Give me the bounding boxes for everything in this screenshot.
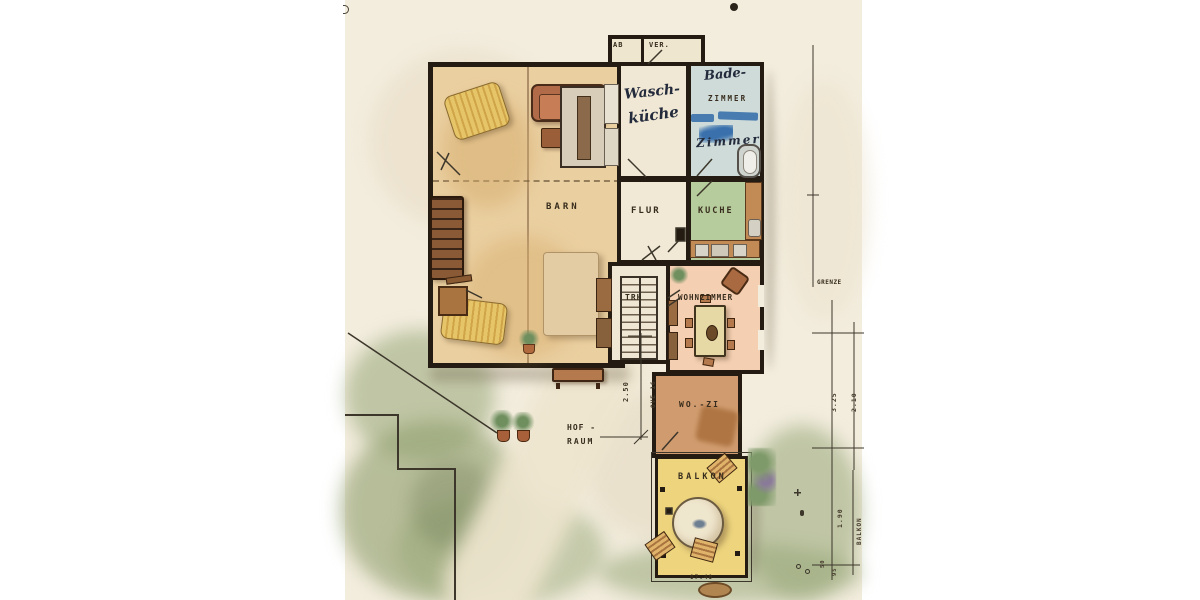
bench-leg: [596, 383, 600, 389]
kitchen-counter: [690, 240, 760, 258]
railing-post: [660, 487, 665, 492]
shrub-cluster: [748, 448, 776, 506]
shelf-contents: [577, 96, 591, 160]
dining-table: [694, 305, 726, 357]
window-opening: [758, 330, 764, 350]
ink-speck: [794, 489, 801, 496]
chair: [685, 338, 693, 348]
sideboard: [668, 300, 678, 326]
sink: [748, 219, 761, 237]
room-label-ver: VER.: [649, 41, 670, 49]
ink-speck: [796, 564, 801, 569]
floor-plan-scene: AB VER. Wasch- küche Bade- ZIMMER Zimmer…: [0, 0, 1200, 600]
staircase: [620, 276, 658, 360]
chair: [702, 357, 714, 367]
chair: [727, 318, 735, 328]
bathtub: [737, 144, 761, 178]
small-cabinet: [596, 278, 612, 312]
flower-pot: [517, 430, 530, 442]
blue-paint-stroke: [718, 111, 758, 120]
long-table-rug: [543, 252, 599, 336]
room-label-trh: TRH: [625, 293, 642, 302]
window-opening: [758, 285, 764, 307]
table-centerpiece: [706, 325, 718, 341]
room-label-bade-print: ZIMMER: [708, 94, 747, 103]
dimension-left-a: 2.50: [622, 381, 630, 402]
bench: [552, 368, 604, 382]
flower-pot: [497, 430, 510, 442]
dimension-left-b: OVE 16: [650, 380, 657, 408]
plant-pot: [523, 344, 535, 354]
dimension-right-b: 2.10: [850, 392, 858, 412]
counter-appliance: [733, 244, 747, 257]
railing-post: [737, 486, 742, 491]
dimension-bottom: 07.40: [690, 574, 713, 581]
dimension-right-d: BALKON: [856, 517, 863, 545]
laundry-appliance: [604, 128, 619, 166]
room-wozi: [652, 372, 742, 458]
stepping-stone: [698, 582, 732, 598]
room-label-flur: FLUR: [631, 206, 661, 216]
area-label-hof-line1: HOF -: [567, 423, 596, 432]
dimension-right-c: 1.90: [836, 508, 844, 528]
room-label-wozi: WO.-ZI: [679, 400, 720, 409]
room-label-kueche: KUCHE: [698, 206, 734, 216]
plant-foliage: [510, 412, 536, 432]
boundary-label-grenze: GRENZE: [817, 279, 842, 286]
ink-speck: [805, 569, 810, 574]
chair: [727, 340, 735, 350]
crate: [438, 286, 468, 316]
cart: [430, 196, 464, 280]
table-decor: [692, 519, 707, 529]
wozi-floor-patch: [695, 404, 740, 447]
room-label-balkon: BALKON: [678, 472, 727, 482]
railing-post: [735, 551, 740, 556]
ink-speck: [730, 3, 738, 11]
room-label-ab: AB: [613, 41, 623, 49]
dimension-tick-a: 50: [820, 559, 826, 568]
chair: [685, 318, 693, 328]
area-label-hof-line2: RAUM: [567, 437, 594, 446]
shelf-unit: [560, 86, 606, 168]
room-label-wohnzimmer: WOHNZIMMER: [678, 293, 733, 302]
sideboard: [668, 332, 678, 360]
stair-rail: [639, 278, 641, 358]
dimension-right-a: 3.25: [830, 392, 838, 412]
bench-leg: [556, 383, 560, 389]
room-label-barn: BARN: [546, 202, 580, 212]
ink-speck: [800, 510, 804, 516]
small-cabinet: [596, 318, 612, 348]
building-shadow: [764, 70, 776, 370]
stove: [711, 244, 729, 257]
room-flur: [617, 178, 690, 264]
blue-paint-stroke: [691, 114, 714, 122]
sink: [695, 244, 709, 257]
kitchen-counter: [745, 182, 762, 240]
potted-plant: [670, 266, 688, 284]
laundry-appliance: [604, 84, 619, 124]
dimension-tick-b: 95: [832, 567, 838, 576]
bathtub-basin: [743, 150, 757, 174]
